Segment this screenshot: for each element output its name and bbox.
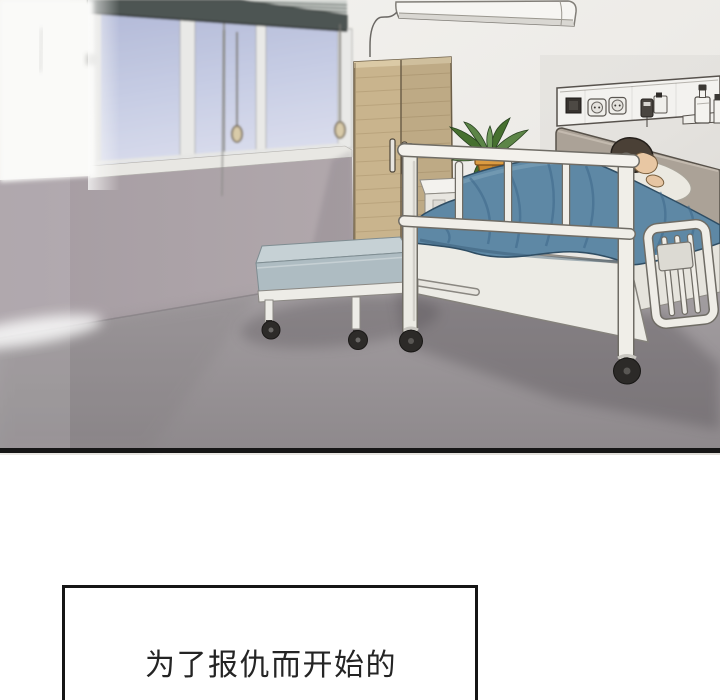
power-outlet [609,98,626,115]
gas-connector [654,96,667,113]
power-outlet [588,99,606,116]
window-with-blinds [88,0,352,171]
caption-box: 为了报仇而开始的 [62,585,478,700]
comic-page: 为了报仇而开始的 [0,0,720,700]
comic-panel-illustration [0,0,720,455]
side-rail-handle [657,242,694,271]
caption-text: 为了报仇而开始的 [145,640,397,684]
gas-connector [641,99,653,117]
wardrobe-handle [390,139,395,172]
panel-bottom-border [0,448,720,453]
